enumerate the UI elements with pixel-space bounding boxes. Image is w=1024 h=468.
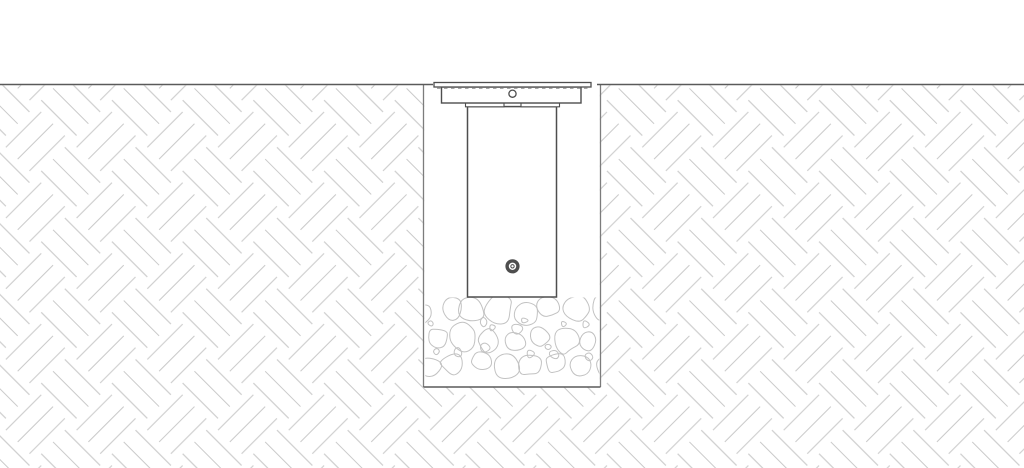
fixture-flange [434, 83, 591, 88]
housing-bolt [509, 90, 516, 97]
section-drawing [0, 0, 1024, 468]
drawing-canvas [0, 0, 1024, 468]
